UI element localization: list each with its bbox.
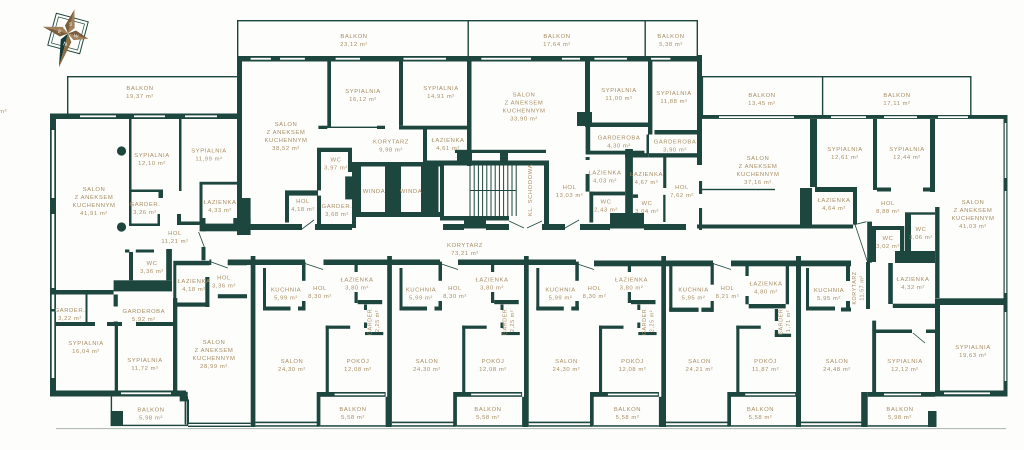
svg-text:BALKON: BALKON	[748, 93, 775, 99]
svg-text:GARDER.: GARDER.	[130, 202, 161, 208]
svg-text:POKÓJ: POKÓJ	[754, 358, 777, 365]
svg-text:5,95 m²: 5,95 m²	[817, 296, 841, 302]
svg-text:5,58 m²: 5,58 m²	[616, 415, 640, 421]
svg-text:KL. SCHODOWA: KL. SCHODOWA	[528, 164, 534, 216]
svg-text:ŁAZIENKA: ŁAZIENKA	[476, 278, 509, 284]
svg-text:KUCHENNYM: KUCHENNYM	[193, 356, 236, 362]
svg-text:8,21 m²: 8,21 m²	[716, 294, 740, 300]
svg-text:12,12 m²: 12,12 m²	[891, 367, 919, 373]
svg-text:HOL: HOL	[563, 185, 577, 191]
svg-text:KUCHENNYM: KUCHENNYM	[73, 203, 116, 209]
svg-text:KUCHENNYM: KUCHENNYM	[503, 109, 546, 115]
svg-text:12,10 m²: 12,10 m²	[138, 161, 166, 167]
svg-text:HOL: HOL	[168, 231, 182, 237]
svg-text:SYPIALNIA: SYPIALNIA	[656, 91, 691, 97]
svg-text:ŁAZIENKA: ŁAZIENKA	[615, 278, 648, 284]
svg-text:m²: m²	[0, 109, 7, 115]
svg-text:GARDER.: GARDER.	[642, 307, 648, 335]
svg-text:Z ANEKSEM: Z ANEKSEM	[267, 130, 306, 136]
svg-text:SALON: SALON	[416, 359, 439, 365]
svg-text:24,21 m²: 24,21 m²	[686, 367, 714, 373]
svg-text:BALKON: BALKON	[126, 86, 153, 92]
svg-text:11,21 m²: 11,21 m²	[161, 239, 188, 245]
svg-text:POKÓJ: POKÓJ	[482, 358, 505, 365]
svg-text:8,88 m²: 8,88 m²	[876, 209, 900, 215]
svg-text:BALKON: BALKON	[883, 93, 910, 99]
svg-text:3,80 m²: 3,80 m²	[480, 286, 504, 292]
svg-text:KORYTARZ: KORYTARZ	[447, 243, 483, 249]
svg-text:24,30 m²: 24,30 m²	[413, 367, 441, 373]
svg-text:BALKON: BALKON	[747, 407, 774, 413]
svg-text:5,95 m²: 5,95 m²	[682, 296, 706, 302]
svg-text:POKÓJ: POKÓJ	[347, 358, 370, 365]
svg-text:4,33 m²: 4,33 m²	[208, 208, 232, 214]
svg-text:3,80 m²: 3,80 m²	[620, 286, 644, 292]
svg-text:16,12 m²: 16,12 m²	[349, 97, 377, 103]
svg-text:19,37 m²: 19,37 m²	[126, 94, 154, 100]
svg-text:Z ANEKSEM: Z ANEKSEM	[75, 195, 114, 201]
svg-text:33,90 m²: 33,90 m²	[510, 117, 538, 123]
svg-text:Z ANEKSEM: Z ANEKSEM	[739, 164, 778, 170]
svg-text:WC: WC	[916, 227, 927, 233]
svg-text:13,45 m²: 13,45 m²	[748, 101, 776, 107]
svg-text:ŁAZIENKA: ŁAZIENKA	[341, 278, 374, 284]
svg-text:SALON: SALON	[688, 359, 711, 365]
svg-text:12,08 m²: 12,08 m²	[344, 367, 372, 373]
svg-text:SYPIALNIA: SYPIALNIA	[134, 153, 169, 159]
svg-text:12,44 m²: 12,44 m²	[893, 155, 921, 161]
svg-text:2,25 m²: 2,25 m²	[510, 310, 516, 332]
svg-text:5,98 m²: 5,98 m²	[139, 416, 163, 422]
svg-text:SYPIALNIA: SYPIALNIA	[345, 89, 380, 95]
svg-text:KUCHENNYM: KUCHENNYM	[952, 216, 995, 222]
svg-text:ŁAZIENKA: ŁAZIENKA	[589, 171, 622, 177]
svg-text:9,98 m²: 9,98 m²	[379, 148, 403, 154]
svg-text:POKÓJ: POKÓJ	[621, 358, 644, 365]
svg-text:38,52 m²: 38,52 m²	[272, 146, 300, 152]
svg-text:28,99 m²: 28,99 m²	[200, 364, 228, 370]
svg-text:5,58 m²: 5,58 m²	[476, 415, 500, 421]
svg-text:BALKON: BALKON	[339, 407, 366, 413]
svg-text:HOL: HOL	[448, 286, 462, 292]
svg-text:HOL: HOL	[313, 286, 327, 292]
svg-text:KORYTARZ: KORYTARZ	[373, 140, 409, 146]
svg-text:ŁAZIENKA: ŁAZIENKA	[630, 172, 663, 178]
svg-text:5,58 m²: 5,58 m²	[341, 415, 365, 421]
svg-text:BALKON: BALKON	[474, 407, 501, 413]
svg-text:3,36 m²: 3,36 m²	[212, 284, 236, 290]
svg-text:12,61 m²: 12,61 m²	[831, 155, 859, 161]
svg-text:GARDER.: GARDER.	[368, 307, 374, 335]
svg-text:SALON: SALON	[281, 359, 304, 365]
svg-text:SALON: SALON	[83, 187, 106, 193]
svg-text:3,06 m²: 3,06 m²	[909, 235, 933, 241]
svg-text:4,61 m²: 4,61 m²	[436, 146, 460, 152]
svg-text:3,36 m²: 3,36 m²	[140, 269, 164, 275]
svg-text:16,04 m²: 16,04 m²	[72, 349, 100, 355]
svg-text:SALON: SALON	[826, 359, 849, 365]
svg-text:GARDER.: GARDER.	[503, 307, 509, 335]
svg-text:ŁAZIENKA: ŁAZIENKA	[897, 277, 930, 283]
svg-text:SALON: SALON	[747, 156, 770, 162]
svg-text:HOL: HOL	[217, 276, 231, 282]
svg-text:HOL: HOL	[721, 286, 735, 292]
svg-text:11,57 m²: 11,57 m²	[860, 275, 866, 300]
svg-text:24,30 m²: 24,30 m²	[278, 367, 306, 373]
svg-text:BALKON: BALKON	[886, 407, 913, 413]
svg-text:5,99 m²: 5,99 m²	[549, 296, 573, 302]
svg-text:4,30 m²: 4,30 m²	[607, 144, 631, 150]
svg-text:BALKON: BALKON	[614, 407, 641, 413]
svg-text:2,25 m²: 2,25 m²	[375, 310, 381, 332]
svg-text:5,92 m²: 5,92 m²	[132, 317, 156, 323]
svg-text:KUCHNIA: KUCHNIA	[545, 288, 575, 294]
svg-text:5,98 m²: 5,98 m²	[888, 415, 912, 421]
svg-text:8,30 m²: 8,30 m²	[308, 294, 332, 300]
svg-text:GARDEROBA: GARDEROBA	[654, 140, 697, 146]
svg-text:73,21 m²: 73,21 m²	[451, 251, 479, 257]
svg-text:KUCHNIA: KUCHNIA	[678, 288, 708, 294]
svg-text:8,30 m²: 8,30 m²	[443, 294, 467, 300]
svg-text:SALON: SALON	[513, 93, 536, 99]
svg-text:ŁAZIENKA: ŁAZIENKA	[178, 279, 211, 285]
svg-text:5,99 m²: 5,99 m²	[409, 296, 433, 302]
svg-text:SYPIALNIA: SYPIALNIA	[423, 86, 458, 92]
svg-text:GARDEROBA: GARDEROBA	[123, 309, 166, 315]
svg-text:ŁAZIENKA: ŁAZIENKA	[818, 198, 851, 204]
svg-text:WINDA: WINDA	[363, 189, 385, 195]
svg-text:4,18 m²: 4,18 m²	[291, 207, 315, 213]
svg-text:SYPIALNIA: SYPIALNIA	[68, 341, 103, 347]
svg-text:41,91 m²: 41,91 m²	[80, 211, 108, 217]
svg-text:SYPIALNIA: SYPIALNIA	[889, 147, 924, 153]
svg-text:KORYTARZ: KORYTARZ	[852, 271, 858, 304]
svg-text:WC: WC	[331, 158, 342, 164]
svg-text:Z ANEKSEM: Z ANEKSEM	[505, 101, 544, 107]
svg-text:SALON: SALON	[203, 340, 226, 346]
svg-text:SALON: SALON	[962, 200, 985, 206]
svg-text:KUCHENNYM: KUCHENNYM	[737, 172, 780, 178]
svg-text:4,64 m²: 4,64 m²	[822, 206, 846, 212]
svg-text:KUCHENNYM: KUCHENNYM	[265, 138, 308, 144]
svg-text:3,04 m²: 3,04 m²	[635, 209, 659, 215]
svg-text:KUCHNIA: KUCHNIA	[406, 288, 436, 294]
svg-text:11,87 m²: 11,87 m²	[752, 367, 779, 373]
svg-text:SYPIALNIA: SYPIALNIA	[887, 359, 922, 365]
svg-text:3,90 m²: 3,90 m²	[663, 148, 687, 154]
svg-text:23,12 m²: 23,12 m²	[340, 42, 368, 48]
svg-text:SALON: SALON	[555, 359, 578, 365]
svg-text:GARDER.: GARDER.	[322, 204, 353, 210]
svg-text:WC: WC	[147, 261, 158, 267]
svg-text:KUCHNIA: KUCHNIA	[271, 288, 301, 294]
svg-text:SYPIALNIA: SYPIALNIA	[191, 149, 226, 155]
svg-text:2,25 m²: 2,25 m²	[650, 310, 656, 332]
svg-text:41,03 m²: 41,03 m²	[959, 224, 987, 230]
svg-text:HOL: HOL	[675, 185, 689, 191]
svg-text:ŁAZIENKA: ŁAZIENKA	[750, 282, 783, 288]
svg-text:3,97 m²: 3,97 m²	[324, 166, 348, 172]
svg-text:11,00 m²: 11,00 m²	[605, 96, 632, 102]
svg-text:4,32 m²: 4,32 m²	[901, 285, 925, 291]
svg-text:HOL: HOL	[881, 201, 895, 207]
svg-text:12,08 m²: 12,08 m²	[619, 367, 647, 373]
svg-text:WC: WC	[601, 200, 612, 206]
svg-text:BALKON: BALKON	[137, 408, 164, 414]
svg-text:11,72 m²: 11,72 m²	[131, 366, 158, 372]
svg-text:5,58 m²: 5,58 m²	[749, 415, 773, 421]
svg-text:4,67 m²: 4,67 m²	[635, 180, 659, 186]
svg-text:3,26 m²: 3,26 m²	[133, 210, 157, 216]
svg-text:11,99 m²: 11,99 m²	[195, 157, 222, 163]
svg-text:SYPIALNIA: SYPIALNIA	[127, 358, 162, 364]
svg-text:12,08 m²: 12,08 m²	[479, 367, 507, 373]
svg-text:3,68 m²: 3,68 m²	[325, 212, 349, 218]
svg-text:ŁAZIENKA: ŁAZIENKA	[432, 138, 465, 144]
svg-text:37,16 m²: 37,16 m²	[744, 180, 772, 186]
svg-text:BALKON: BALKON	[657, 34, 684, 40]
svg-text:17,11 m²: 17,11 m²	[883, 101, 910, 107]
svg-text:Z ANEKSEM: Z ANEKSEM	[954, 208, 993, 214]
svg-text:GARDEROBA: GARDEROBA	[598, 136, 641, 142]
svg-text:SALON: SALON	[275, 122, 298, 128]
svg-text:4,80 m²: 4,80 m²	[754, 290, 778, 296]
svg-text:HOL: HOL	[296, 199, 310, 205]
svg-text:GARDER.: GARDER.	[779, 307, 785, 335]
svg-text:2,43 m²: 2,43 m²	[594, 208, 618, 214]
svg-text:KUCHNIA: KUCHNIA	[814, 288, 844, 294]
svg-text:WC: WC	[642, 201, 653, 207]
svg-text:4,18 m²: 4,18 m²	[182, 287, 206, 293]
svg-text:WINDA: WINDA	[400, 189, 422, 195]
svg-text:GARDER.: GARDER.	[55, 308, 86, 314]
svg-text:13,03 m²: 13,03 m²	[556, 193, 584, 199]
svg-text:HOL: HOL	[588, 286, 602, 292]
svg-text:7,62 m²: 7,62 m²	[670, 193, 694, 199]
svg-text:4,03 m²: 4,03 m²	[593, 179, 617, 185]
svg-text:3,02 m²: 3,02 m²	[876, 244, 900, 250]
svg-text:5,38 m²: 5,38 m²	[659, 42, 683, 48]
svg-text:3,22 m²: 3,22 m²	[58, 316, 82, 322]
svg-text:14,91 m²: 14,91 m²	[427, 94, 455, 100]
svg-text:24,30 m²: 24,30 m²	[553, 367, 581, 373]
svg-text:8,30 m²: 8,30 m²	[583, 294, 607, 300]
svg-text:1,71 m²: 1,71 m²	[786, 310, 792, 332]
svg-text:BALKON: BALKON	[340, 34, 367, 40]
svg-text:BALKON: BALKON	[543, 34, 570, 40]
svg-text:19,63 m²: 19,63 m²	[959, 353, 987, 359]
svg-text:17,64 m²: 17,64 m²	[543, 42, 571, 48]
svg-text:5,99 m²: 5,99 m²	[274, 296, 298, 302]
svg-text:SYPIALNIA: SYPIALNIA	[827, 147, 862, 153]
svg-text:ŁAZIENKA: ŁAZIENKA	[204, 200, 237, 206]
svg-text:WC: WC	[883, 236, 894, 242]
svg-text:SYPIALNIA: SYPIALNIA	[955, 345, 990, 351]
svg-text:24,48 m²: 24,48 m²	[823, 367, 851, 373]
svg-text:11,88 m²: 11,88 m²	[660, 99, 687, 105]
svg-text:SYPIALNIA: SYPIALNIA	[601, 88, 636, 94]
svg-text:3,80 m²: 3,80 m²	[345, 286, 369, 292]
svg-text:Z ANEKSEM: Z ANEKSEM	[195, 348, 234, 354]
